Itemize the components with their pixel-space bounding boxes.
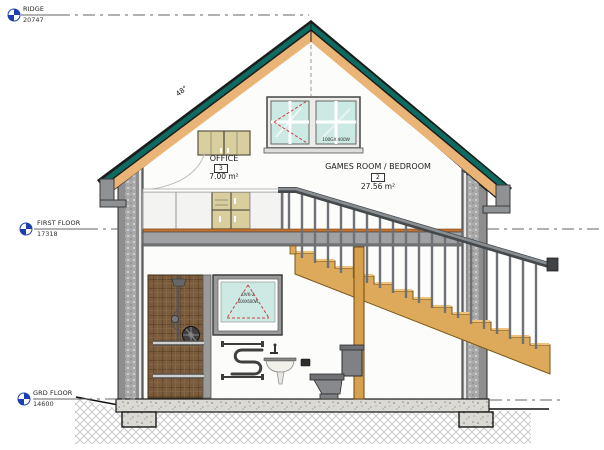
ridge-level-label: RIDGE: [23, 6, 44, 13]
shower-area: [148, 275, 211, 398]
gable-window-tag: 100GX 400W: [314, 139, 358, 144]
office-wall-cabinets: [198, 131, 250, 155]
grd-floor-level-marker: [18, 393, 30, 405]
wall-socket: [301, 359, 310, 366]
office-room-area: 7.00 m²: [199, 173, 249, 181]
section-drawing: RIDGE 20747 FIRST FLOOR 17318 GRD FLOOR …: [0, 0, 604, 450]
bath-window-tag-line2: 600X600W: [222, 300, 274, 304]
gable-window: [264, 97, 363, 153]
section-linework: [0, 0, 604, 450]
games-room-name: GAMES ROOM / BEDROOM: [308, 163, 448, 171]
ground-slab: [116, 399, 489, 412]
office-desk-units: [143, 189, 283, 229]
ridge-level-marker: [8, 9, 20, 21]
first-floor-level-label: FIRST FLOOR: [37, 220, 80, 227]
grd-floor-level-label: GRD FLOOR: [33, 390, 72, 397]
first-floor-level-elevation: 17318: [37, 231, 58, 238]
first-floor-level-marker: [20, 223, 32, 235]
games-room-tag: 2: [371, 173, 385, 182]
grd-floor-level-elevation: 14600: [33, 401, 54, 408]
level-markers: [8, 9, 32, 405]
ridge-level-elevation: 20747: [23, 17, 44, 24]
games-room-area: 27.56 m²: [308, 183, 448, 191]
bathroom-window: [213, 275, 282, 335]
bath-window-tag-line1: OV6-2: [222, 294, 274, 299]
office-room-name: OFFICE: [199, 155, 249, 163]
